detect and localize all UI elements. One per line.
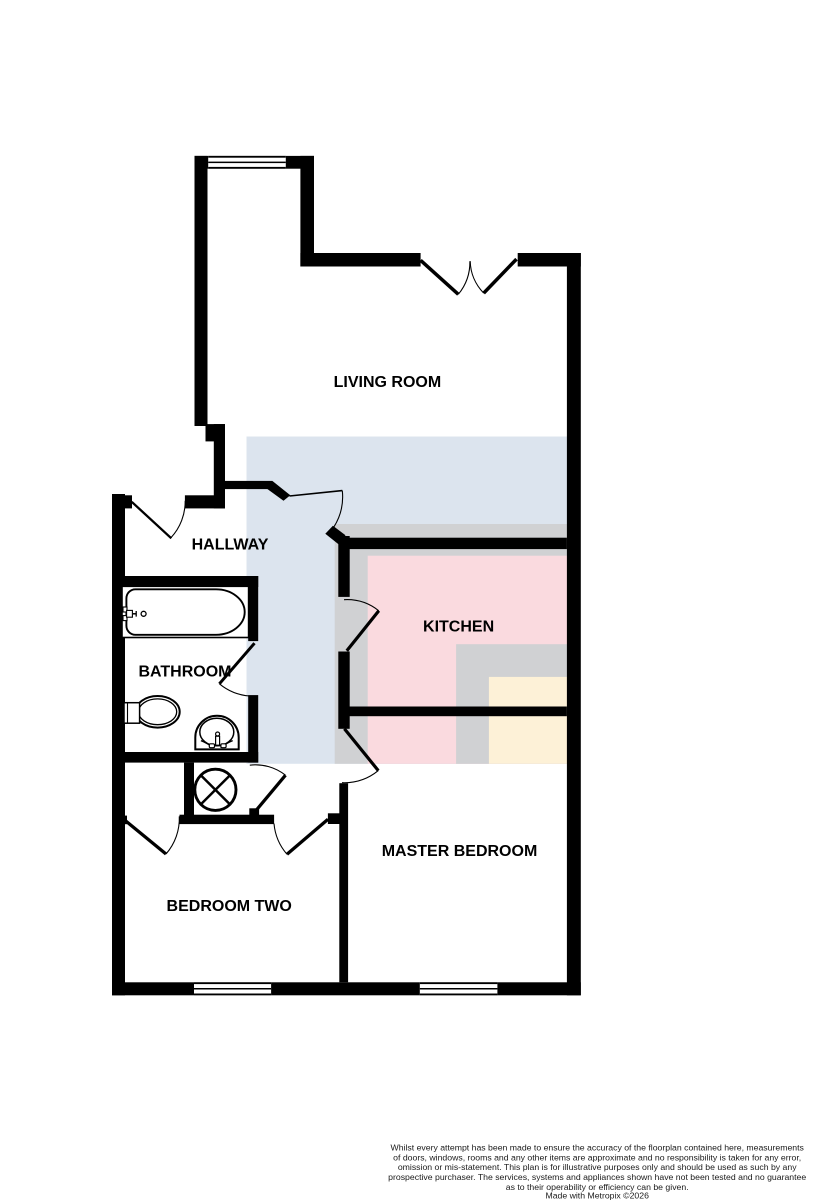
svg-text:prospective purchaser. The ser: prospective purchaser. The services, sys… (388, 1172, 806, 1182)
svg-text:KITCHEN: KITCHEN (423, 619, 494, 636)
svg-text:HALLWAY: HALLWAY (192, 537, 269, 554)
svg-text:BATHROOM: BATHROOM (138, 664, 231, 681)
svg-text:omission or mis-statement. Thi: omission or mis-statement. This plan is … (398, 1162, 797, 1172)
svg-text:MASTER BEDROOM: MASTER BEDROOM (382, 843, 538, 860)
svg-text:Whilst every attempt has been: Whilst every attempt has been made to en… (391, 1143, 805, 1153)
svg-text:of doors, windows, rooms and a: of doors, windows, rooms and any other i… (393, 1152, 801, 1162)
svg-text:Made with Metropix ©2026: Made with Metropix ©2026 (545, 1191, 649, 1200)
svg-text:LIVING ROOM: LIVING ROOM (334, 374, 442, 391)
svg-text:BEDROOM TWO: BEDROOM TWO (167, 898, 292, 915)
